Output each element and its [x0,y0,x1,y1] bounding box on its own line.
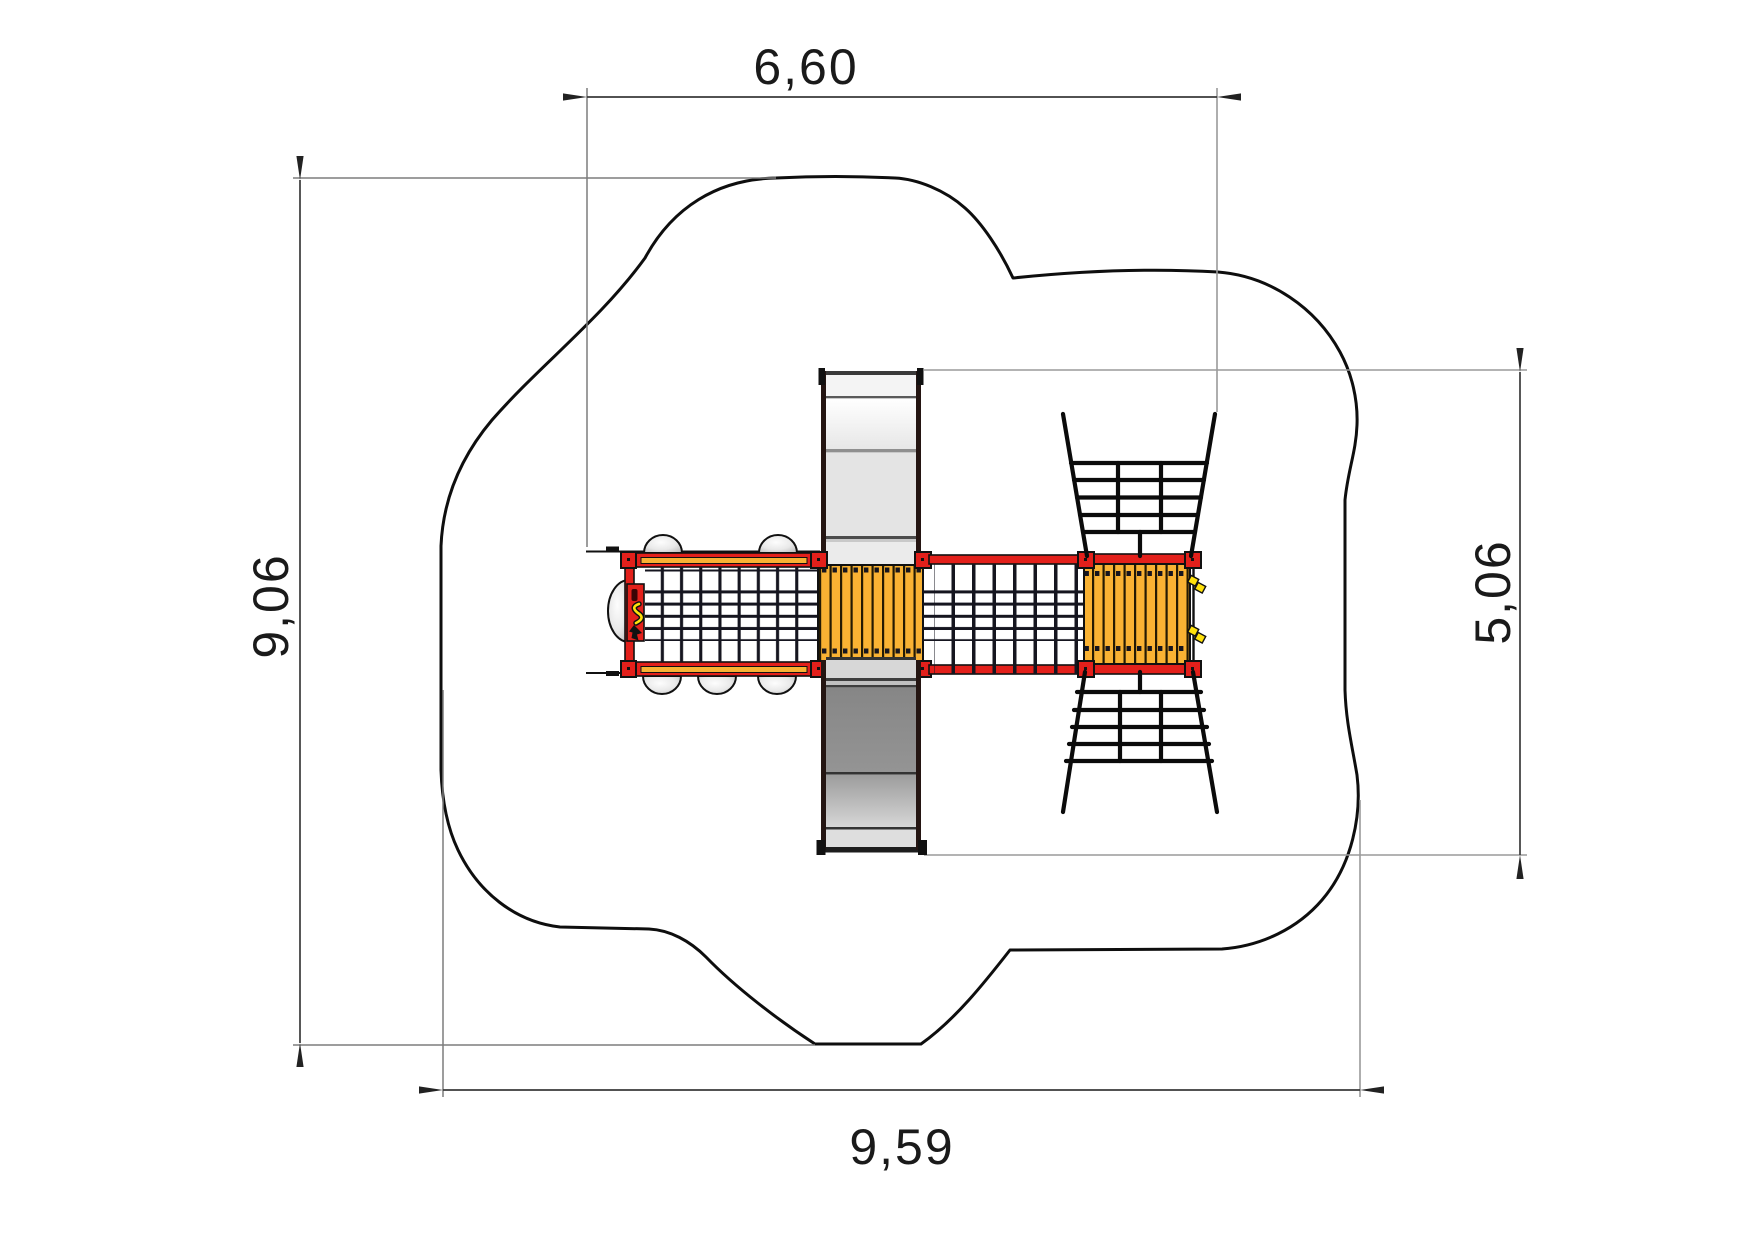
post-bolt [627,667,630,670]
panel-slot-icon [632,589,638,601]
slide-bed-dark [826,687,916,772]
deck-fasteners [1085,646,1189,651]
slide-band [826,396,916,398]
right-platform [1078,552,1206,677]
slide-band [826,678,916,681]
playground-plan-drawing: 6,60 9,06 5,06 9,59 [0,0,1754,1240]
anchor-tab [606,671,619,676]
post-bolt [921,667,924,670]
slide-foot [817,840,826,855]
slide-band [826,536,916,539]
upper-slide [819,368,924,565]
slide-band [826,371,916,375]
net-mesh-horizontal-ropes [923,584,1084,641]
post-bolt [817,558,820,561]
dome [643,676,681,694]
hourglass-net-top [1063,414,1215,556]
deck-fasteners [819,649,922,654]
slide-band [826,685,916,687]
lower-slide [817,657,928,855]
post-bolt [1191,667,1194,670]
net-rail-stripe [641,667,807,673]
slide-band [826,398,916,449]
slide-band [826,539,916,542]
slide-runout [826,775,916,827]
net-rail-stripe [641,558,807,564]
slide-band [826,681,916,685]
dome [758,676,796,694]
slide-band [826,452,916,536]
post-bolt [817,667,820,670]
net-mesh-horizontal-ropes [645,584,818,641]
deck-fasteners [819,568,922,573]
slide-band [826,375,916,396]
dimension-label-left: 9,06 [243,553,299,658]
dimension-label-top: 6,60 [753,39,858,95]
slide-band [826,449,916,452]
dome [644,535,682,553]
slide-top-post [819,368,826,385]
slide-side-rail [821,371,826,553]
slide-band [826,772,916,775]
slide-side-rail [916,371,921,553]
slide-band [826,827,916,830]
slide-side-rail [821,660,826,850]
dome [698,676,736,694]
anchor-tab [606,547,619,552]
left-net-tunnel [586,535,820,694]
post-bolt [1191,558,1194,561]
net-rail [929,555,1081,564]
slide-top-post [917,368,924,385]
post-bolt [627,558,630,561]
slide-band [826,830,916,847]
dimension-label-bottom: 9,59 [849,1119,954,1175]
deck-fasteners [1085,571,1189,576]
dome [759,535,797,553]
post-bolt [1084,558,1087,561]
hourglass-net-bottom [1063,672,1217,812]
slide-side-rail [916,660,921,850]
dimension-label-right: 5,06 [1465,539,1521,644]
post-bolt [921,558,924,561]
slide-end-bar [821,847,921,853]
right-net-bridge [923,555,1084,674]
slide-band [826,660,916,678]
slide-foot [918,840,927,855]
slide-band [826,657,916,660]
post-bolt [1084,667,1087,670]
